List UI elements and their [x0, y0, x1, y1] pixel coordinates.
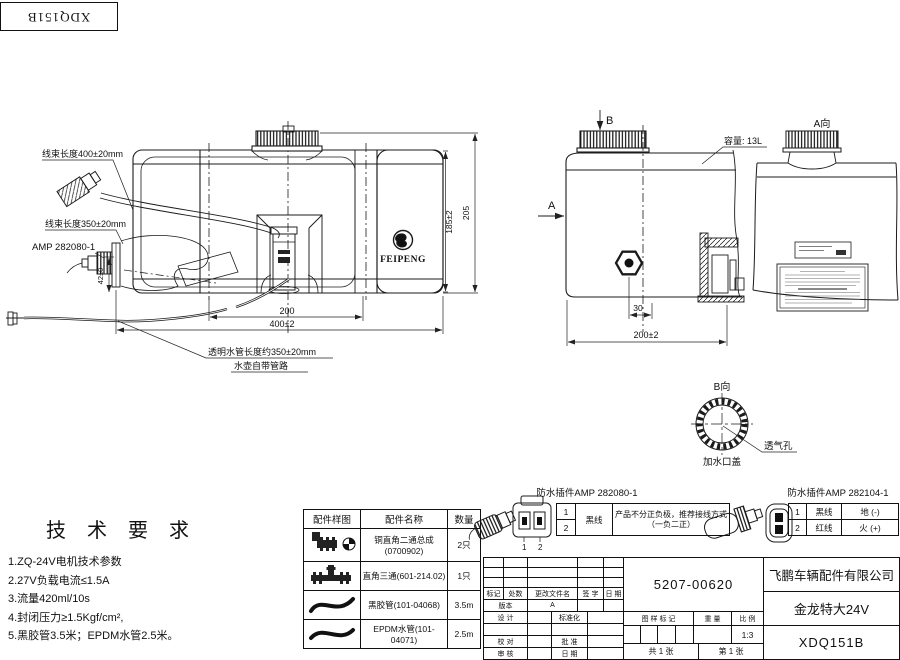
part-sample-hose — [304, 591, 361, 620]
a-view-title: A向 — [814, 117, 831, 130]
part-sample-elbow — [304, 529, 361, 562]
sheet-page: 第 1 张 — [699, 644, 763, 659]
pin-number: 2 — [789, 520, 807, 536]
part-qty: 2只 — [448, 529, 481, 562]
table-row: 铜直角二通总成 (0700902) 2只 — [304, 529, 481, 562]
scale-value: 1:3 — [732, 626, 763, 644]
pin-number: 2 — [557, 520, 576, 536]
dim-400: 400±2 — [270, 319, 295, 329]
title-block-revision-grid: 标记 处数 更改文件名 签 字 日 期 版本 A 设 计 标准化 校 对 批 准 — [484, 558, 624, 659]
wire-color: 黑线 — [807, 504, 842, 520]
part-qty: 2.5m — [448, 620, 481, 649]
wire-color: 黑线 — [576, 504, 613, 536]
label-harness-400: 线束长度400±20mm — [42, 148, 123, 159]
dim-200-2: 200±2 — [634, 330, 659, 340]
hose-icon — [307, 591, 357, 617]
internal-recess — [121, 235, 238, 290]
side-view — [538, 110, 744, 332]
small-label-plate — [795, 242, 851, 258]
mark-label: 图 样 标 记 — [624, 612, 694, 626]
pictogram-pin-1: 1 — [522, 543, 527, 552]
wire-color: 红线 — [807, 520, 842, 536]
connector-282104-title: 防水插件AMP 282104-1 — [778, 485, 898, 499]
part-qty: 1只 — [448, 562, 481, 591]
pin-number: 1 — [789, 504, 807, 520]
dim-205: 205 — [461, 206, 471, 220]
table-row: 黑胶管(101-04068) 3.5m — [304, 591, 481, 620]
part-sample-hose — [304, 620, 361, 649]
drawing-stamp-box: XDQ151B — [0, 2, 118, 31]
b-view-title: B向 — [714, 380, 731, 393]
engineering-drawing-sheet: { "stamp": { "code": "XDQ151B" }, "front… — [0, 0, 900, 660]
warning-label-plate — [777, 264, 868, 311]
approve-label: 批 准 — [552, 636, 588, 648]
tech-requirements-title: 技 术 要 求 — [46, 514, 300, 543]
tech-requirement-item: 2.27V负载电流≤1.5A — [8, 572, 300, 591]
part-name: 铜直角二通总成 — [362, 534, 446, 546]
part-name: 直角三通(601-214.02) — [361, 562, 448, 591]
table-row: EPDM水管(101-04071) 2.5m — [304, 620, 481, 649]
wiring-note-line1: 产品不分正负极，推荐接线方式 — [615, 510, 727, 520]
elbow-fitting-icon — [307, 530, 357, 558]
title-block-center: 5207-00620 图 样 标 记 重 量 比 例 1:3 共 1 张 第 1… — [624, 558, 764, 659]
tech-requirement-item: 4.封闭压力≥1.5Kgf/cm², — [8, 609, 300, 628]
audit-label: 审 核 — [484, 648, 528, 659]
harness-cable — [100, 193, 279, 238]
parts-header-sample: 配件样图 — [304, 510, 361, 529]
rev-header-count: 处数 — [504, 588, 528, 600]
dim-30: 30 — [633, 303, 643, 313]
part-name: 黑胶管(101-04068) — [361, 591, 448, 620]
harness-connector — [57, 168, 103, 207]
rev-header-mark: 标记 — [484, 588, 504, 600]
label-clear-hose: 透明水管长度约350±20mm — [208, 346, 316, 357]
design-label: 设 计 — [484, 612, 528, 624]
parts-table: 配件样图 配件名称 数量 铜直角二通总成 (0700902) 2只 — [303, 509, 481, 649]
tee-fitting-icon — [307, 562, 357, 588]
filler-cap-label: 加水口盖 — [703, 456, 742, 468]
wiring-note: 产品不分正负极，推荐接线方式 （一负二正） — [613, 504, 730, 536]
weight-label: 重 量 — [694, 612, 732, 626]
check-label: 校 对 — [484, 636, 528, 648]
parts-header-name: 配件名称 — [361, 510, 448, 529]
hex-plug — [616, 252, 642, 275]
label-harness-350: 线束长度350±20mm — [45, 218, 126, 229]
connector-282080-title: 防水插件AMP 282080-1 — [512, 485, 662, 499]
part-qty: 3.5m — [448, 591, 481, 620]
table-row: 2 红线 火 (+) — [789, 520, 899, 536]
sheet-total: 共 1 张 — [624, 644, 699, 659]
label-amp-282080: AMP 282080-1 — [32, 242, 95, 253]
version-value: A — [528, 600, 578, 612]
part-number: 5207-00620 — [624, 558, 763, 612]
dim-200: 200 — [279, 306, 294, 316]
pictogram-pin-2: 2 — [538, 543, 543, 552]
title-block: 标记 处数 更改文件名 签 字 日 期 版本 A 设 计 标准化 校 对 批 准 — [483, 557, 900, 660]
rev-header-date: 日 期 — [604, 588, 623, 600]
tech-requirement-item: 1.ZQ-24V电机技术参数 — [8, 553, 300, 572]
feipeng-logo — [394, 231, 413, 250]
pin-number: 1 — [557, 504, 576, 520]
parts-header-qty: 数量 — [448, 510, 481, 529]
pump-section — [698, 233, 744, 302]
standardization-label: 标准化 — [552, 612, 588, 624]
wire-role: 地 (-) — [842, 504, 899, 520]
a-view — [753, 131, 898, 311]
table-row: 直角三通(601-214.02) 1只 — [304, 562, 481, 591]
table-row: 1 黑线 地 (-) — [789, 504, 899, 520]
title-block-right: 飞鹏车辆配件有限公司 金龙特大24V XDQ151B — [764, 558, 899, 659]
connector-282104-table: 1 黑线 地 (-) 2 红线 火 (+) — [788, 503, 899, 536]
vent-hole-label: 透气孔 — [764, 440, 793, 452]
drawing-stamp-code: XDQ151B — [27, 9, 90, 25]
dim-42: 42±0 — [96, 268, 105, 285]
part-name-cell: 铜直角二通总成 (0700902) — [361, 529, 448, 562]
wire-role: 火 (+) — [842, 520, 899, 536]
tech-requirement-item: 5.黑胶管3.5米；EPDM水管2.5米。 — [8, 627, 300, 646]
part-code: (0700902) — [362, 546, 446, 556]
table-row: 1 黑线 产品不分正负极，推荐接线方式 （一负二正） — [557, 504, 730, 520]
clear-hose — [6, 279, 289, 325]
capacity-label: 容量: 13L — [724, 135, 762, 146]
rev-header-file: 更改文件名 — [528, 588, 578, 600]
part-name: EPDM水管(101-04071) — [361, 620, 448, 649]
view-arrow-b: B — [606, 115, 613, 127]
parts-table-header-row: 配件样图 配件名称 数量 — [304, 510, 481, 529]
technical-requirements: 技 术 要 求 1.ZQ-24V电机技术参数 2.27V负载电流≤1.5A 3.… — [8, 514, 300, 646]
filler-cap — [252, 126, 322, 160]
model-code: XDQ151B — [764, 625, 899, 659]
brand-text: FEIPENG — [380, 255, 426, 265]
dim-185: 185±2 — [444, 210, 454, 234]
tech-requirement-item: 3.流量420ml/10s — [8, 590, 300, 609]
view-arrow-a: A — [548, 200, 556, 212]
date-label: 日 期 — [552, 648, 588, 659]
product-name: 金龙特大24V — [764, 591, 899, 625]
company-name: 飞鹏车辆配件有限公司 — [764, 558, 899, 591]
version-label: 版本 — [484, 600, 528, 612]
rev-header-sign: 签 字 — [578, 588, 604, 600]
front-dimensions — [104, 133, 478, 334]
part-sample-tee — [304, 562, 361, 591]
wiring-note-line2: （一负二正） — [615, 520, 727, 530]
hose-icon — [307, 620, 357, 646]
scale-label: 比 例 — [732, 612, 763, 626]
connector-282080-table: 1 黑线 产品不分正负极，推荐接线方式 （一负二正） 2 — [556, 503, 730, 536]
label-kettle-pipe: 水壶自带管路 — [234, 360, 288, 371]
